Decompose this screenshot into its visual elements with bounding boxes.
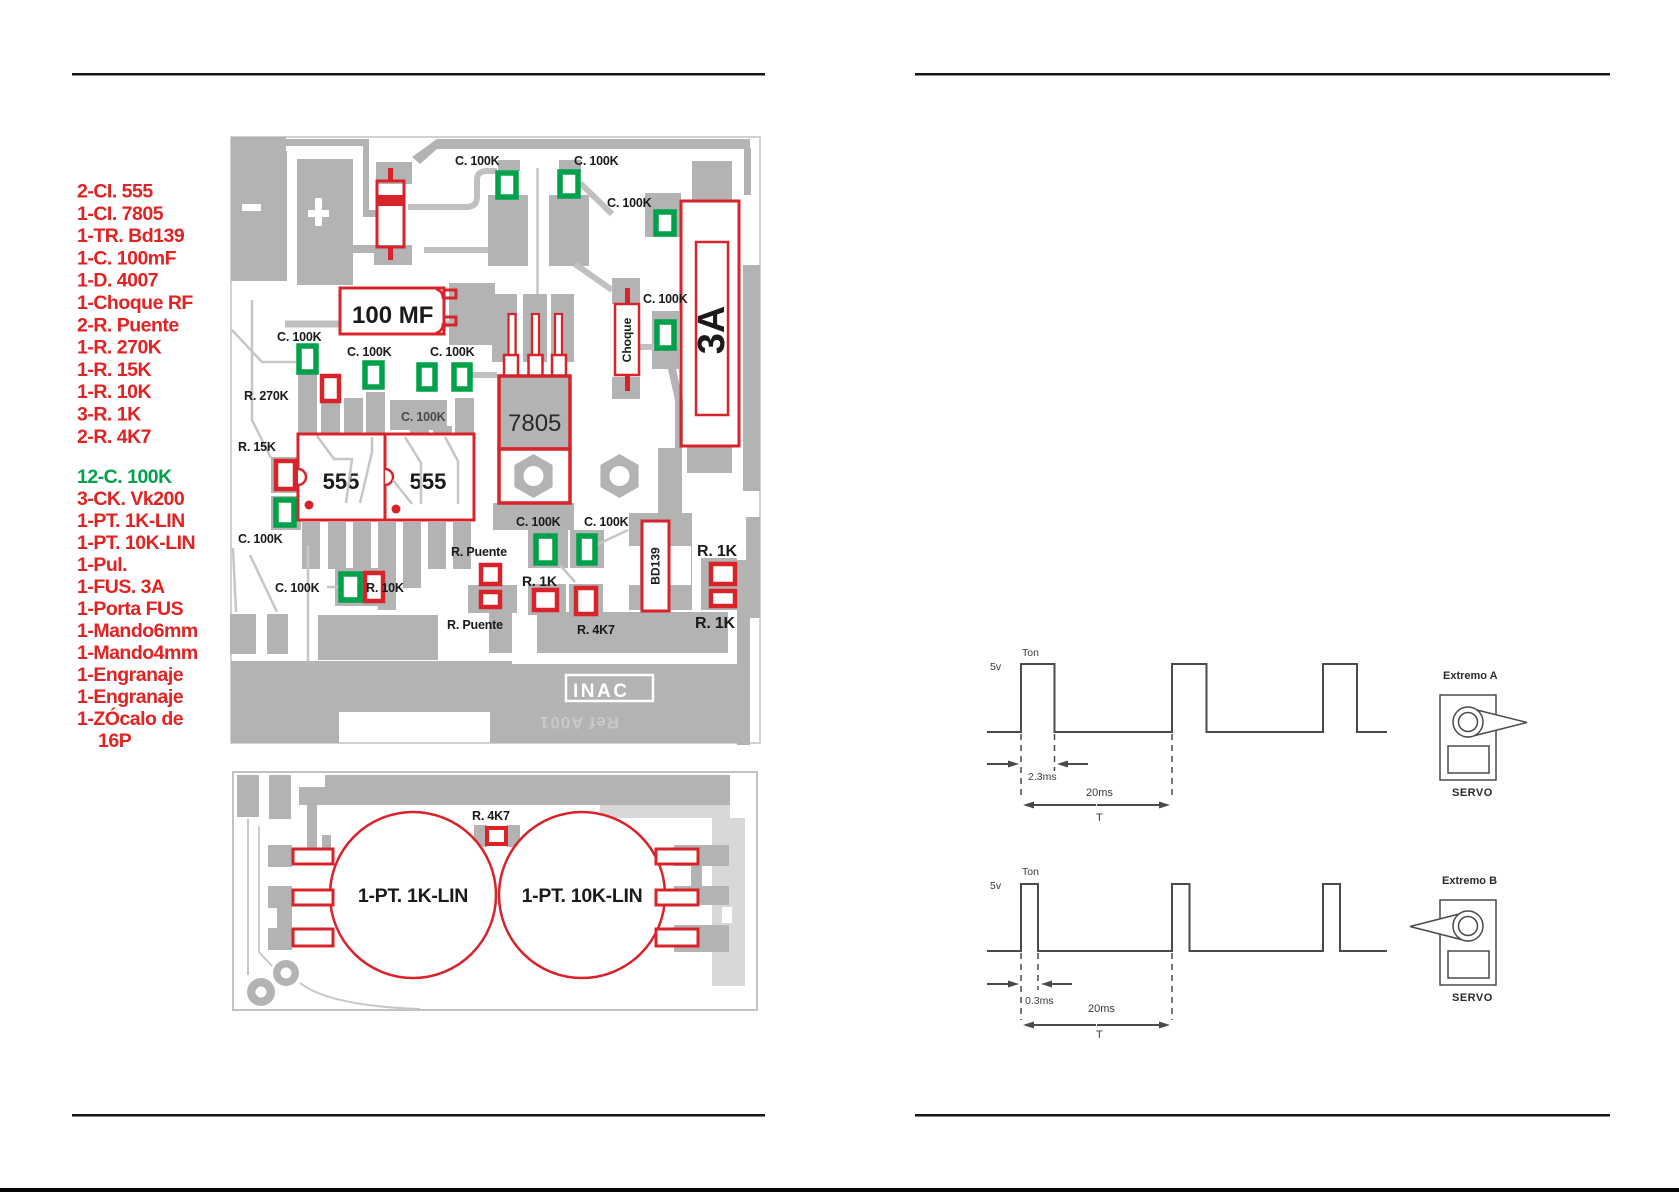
svg-text:1-PT. 10K-LIN: 1-PT. 10K-LIN	[77, 532, 195, 554]
svg-text:R. 270K: R. 270K	[244, 389, 289, 403]
svg-text:7805: 7805	[508, 410, 561, 437]
svg-text:C. 100K: C. 100K	[643, 292, 688, 306]
svg-text:R. 15K: R. 15K	[238, 440, 276, 454]
svg-text:1-C. 100mF: 1-C. 100mF	[77, 247, 177, 269]
svg-text:C. 100K: C. 100K	[238, 532, 283, 546]
svg-text:Ton: Ton	[1022, 866, 1039, 878]
svg-text:C. 100K: C. 100K	[455, 154, 500, 168]
svg-text:R. Puente: R. Puente	[451, 545, 507, 559]
svg-text:1-Choque RF: 1-Choque RF	[77, 292, 193, 314]
svg-text:1-PT. 1K-LIN: 1-PT. 1K-LIN	[358, 885, 468, 907]
svg-text:1-Pul.: 1-Pul.	[77, 554, 127, 576]
svg-text:C. 100K: C. 100K	[277, 330, 322, 344]
svg-text:16P: 16P	[98, 730, 132, 752]
svg-text:2-CI. 555: 2-CI. 555	[77, 181, 153, 203]
svg-text:R. 1K: R. 1K	[522, 573, 557, 589]
svg-text:555: 555	[323, 469, 360, 494]
svg-text:R. 10K: R. 10K	[366, 581, 404, 595]
svg-text:1-Porta FUS: 1-Porta FUS	[77, 598, 184, 620]
svg-text:1-PT. 10K-LIN: 1-PT. 10K-LIN	[522, 885, 643, 907]
svg-text:1-R. 15K: 1-R. 15K	[77, 359, 151, 381]
svg-text:5v: 5v	[990, 880, 1002, 892]
svg-text:Ref A001: Ref A001	[539, 713, 619, 732]
svg-text:555: 555	[410, 469, 447, 494]
svg-text:3A: 3A	[691, 306, 733, 355]
svg-text:R. 1K: R. 1K	[697, 543, 738, 560]
svg-text:C. 100K: C. 100K	[347, 345, 392, 359]
svg-text:C. 100K: C. 100K	[401, 410, 446, 424]
svg-text:C. 100K: C. 100K	[430, 345, 475, 359]
svg-text:20ms: 20ms	[1088, 1003, 1115, 1015]
svg-text:INAC: INAC	[573, 681, 629, 702]
svg-text:Choque: Choque	[620, 317, 634, 362]
svg-text:R. 1K: R. 1K	[695, 615, 736, 632]
svg-text:0.3ms: 0.3ms	[1025, 995, 1054, 1007]
svg-text:1-R. 270K: 1-R. 270K	[77, 337, 162, 359]
svg-text:Extremo A: Extremo A	[1443, 670, 1498, 682]
svg-text:1-Mando6mm: 1-Mando6mm	[77, 620, 198, 642]
svg-text:12-C. 100K: 12-C. 100K	[77, 466, 172, 488]
svg-text:1-CI. 7805: 1-CI. 7805	[77, 203, 164, 225]
svg-text:1-FUS. 3A: 1-FUS. 3A	[77, 576, 165, 598]
svg-text:C. 100K: C. 100K	[275, 581, 320, 595]
svg-text:1-ZÓcalo de: 1-ZÓcalo de	[77, 706, 184, 730]
svg-text:100 MF: 100 MF	[352, 302, 433, 329]
svg-text:C. 100K: C. 100K	[584, 515, 629, 529]
svg-text:BD139: BD139	[649, 547, 663, 585]
svg-text:3-R. 1K: 3-R. 1K	[77, 404, 141, 426]
svg-text:2-R. 4K7: 2-R. 4K7	[77, 426, 151, 448]
svg-text:R. 4K7: R. 4K7	[472, 809, 510, 823]
svg-text:T: T	[1096, 812, 1103, 824]
svg-text:1-Engranaje: 1-Engranaje	[77, 686, 184, 708]
svg-text:1-Mando4mm: 1-Mando4mm	[77, 642, 198, 664]
svg-text:Extremo B: Extremo B	[1442, 875, 1497, 887]
svg-text:SERVO: SERVO	[1452, 992, 1493, 1004]
svg-text:C. 100K: C. 100K	[607, 196, 652, 210]
svg-text:20ms: 20ms	[1086, 787, 1113, 799]
svg-text:5v: 5v	[990, 661, 1002, 673]
svg-text:1-TR. Bd139: 1-TR. Bd139	[77, 225, 185, 247]
svg-text:1-Engranaje: 1-Engranaje	[77, 664, 184, 686]
svg-text:1-R. 10K: 1-R. 10K	[77, 381, 151, 403]
svg-text:C. 100K: C. 100K	[574, 154, 619, 168]
svg-text:1-D. 4007: 1-D. 4007	[77, 270, 158, 292]
svg-text:2-R. Puente: 2-R. Puente	[77, 314, 179, 336]
svg-text:SERVO: SERVO	[1452, 787, 1493, 799]
svg-text:C. 100K: C. 100K	[516, 515, 561, 529]
svg-text:R. 4K7: R. 4K7	[577, 623, 615, 637]
svg-text:2.3ms: 2.3ms	[1028, 771, 1057, 783]
svg-text:Ton: Ton	[1022, 647, 1039, 659]
svg-text:T: T	[1096, 1029, 1103, 1041]
svg-text:1-PT. 1K-LIN: 1-PT. 1K-LIN	[77, 510, 185, 532]
svg-text:3-CK. Vk200: 3-CK. Vk200	[77, 488, 185, 510]
svg-text:R. Puente: R. Puente	[447, 618, 503, 632]
